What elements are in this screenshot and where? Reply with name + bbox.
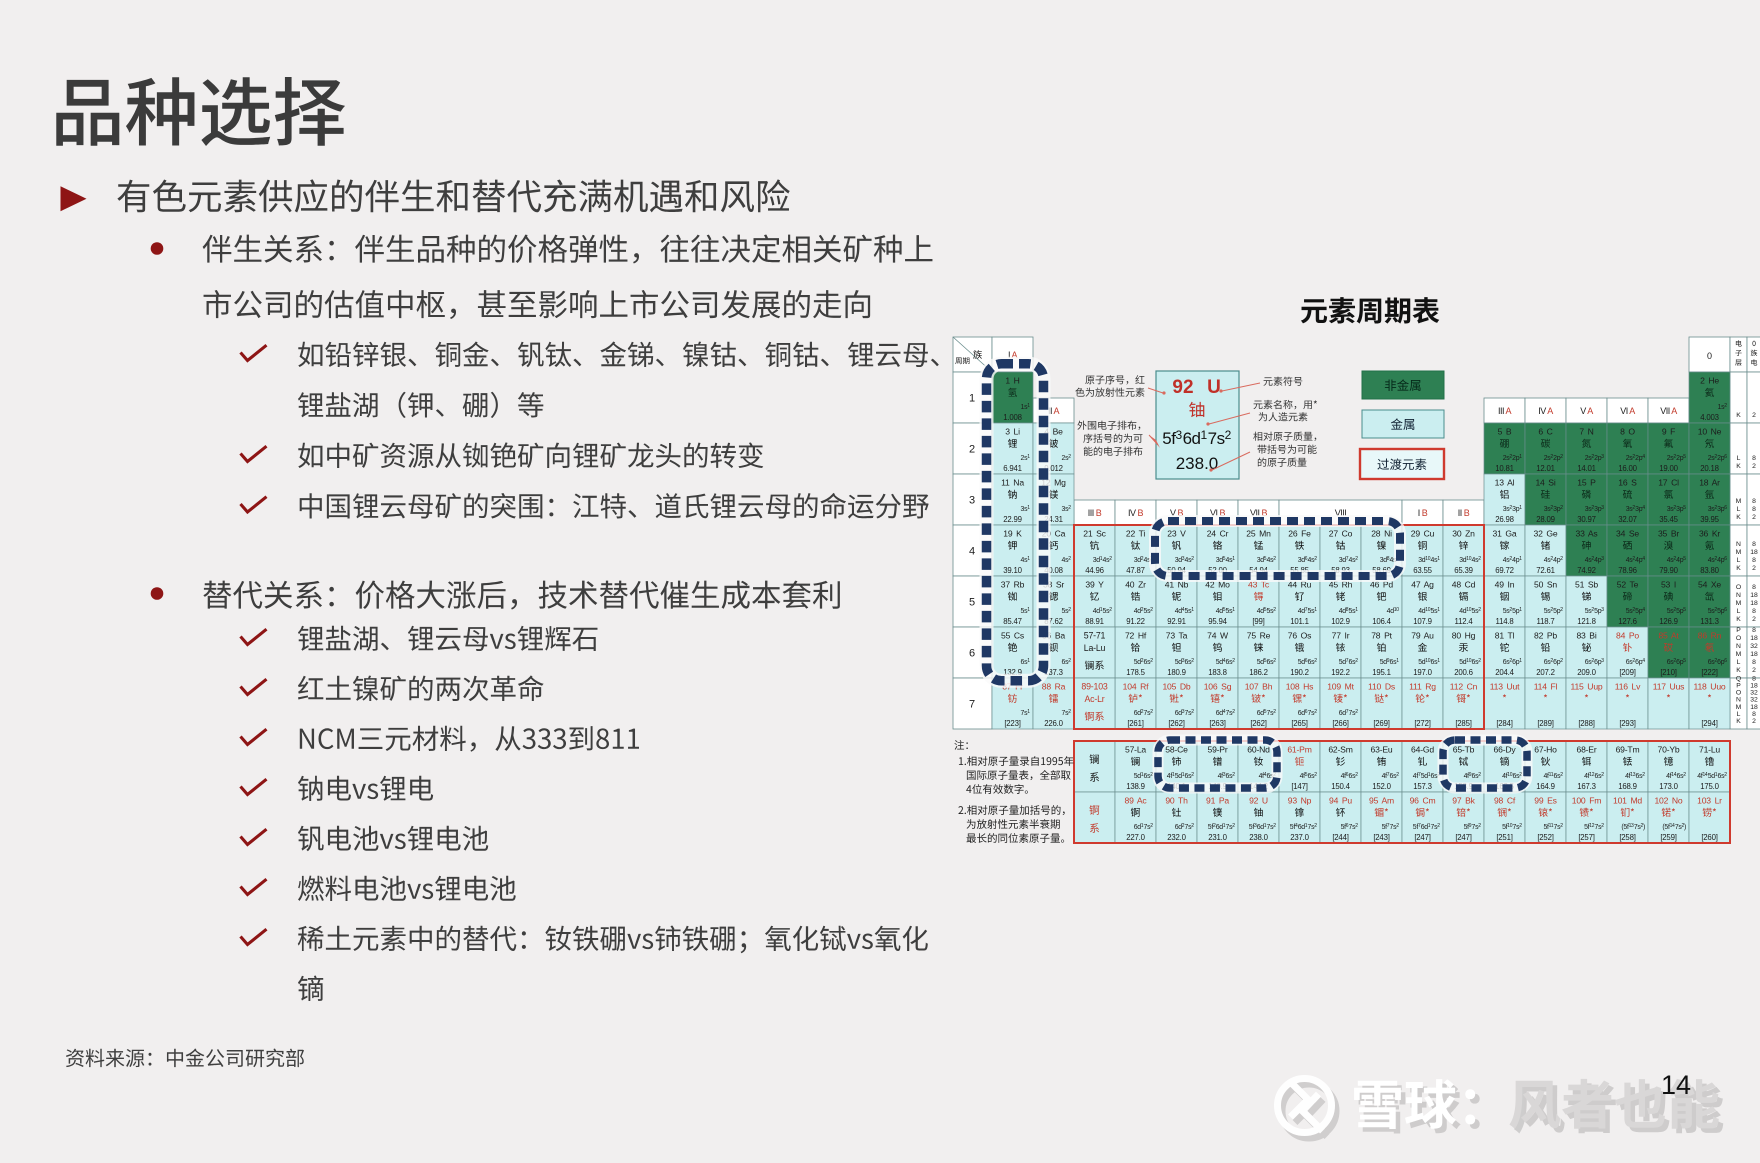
svg-text:78.96: 78.96 <box>1618 566 1637 575</box>
svg-text:[147]: [147] <box>1291 782 1307 791</box>
svg-text:44.96: 44.96 <box>1085 566 1104 575</box>
svg-text:11 Na: 11 Na <box>1001 477 1024 487</box>
svg-text:91.22: 91.22 <box>1126 617 1145 626</box>
svg-text:N: N <box>1736 592 1741 599</box>
svg-text:178.5: 178.5 <box>1126 668 1145 677</box>
svg-text:18: 18 <box>1750 635 1758 642</box>
svg-text:M: M <box>1736 498 1742 505</box>
svg-text:18: 18 <box>1750 683 1758 690</box>
svg-text:10 Ne: 10 Ne <box>1698 426 1722 436</box>
svg-text:102 No: 102 No <box>1654 795 1682 805</box>
svg-text:54 Xe: 54 Xe <box>1698 579 1721 589</box>
svg-text:1 H: 1 H <box>1005 375 1019 385</box>
svg-text:[288]: [288] <box>1578 719 1594 728</box>
svg-text:65.39: 65.39 <box>1454 566 1473 575</box>
svg-text:71-Lu: 71-Lu <box>1699 744 1720 754</box>
svg-text:109 Mt: 109 Mt <box>1327 681 1354 691</box>
svg-text:2s2: 2s2 <box>1062 454 1072 462</box>
svg-text:5f3 6d1 7s2: 5f3 6d1 7s2 <box>1249 823 1276 831</box>
svg-text:39.10: 39.10 <box>1003 566 1022 575</box>
svg-text:89 Ac: 89 Ac <box>1124 795 1147 805</box>
svg-text:110 Ds: 110 Ds <box>1368 681 1395 691</box>
svg-text:1s2: 1s2 <box>1718 403 1728 411</box>
svg-text:2 He: 2 He <box>1700 375 1719 385</box>
svg-text:186.2: 186.2 <box>1249 668 1268 677</box>
svg-text:7 N: 7 N <box>1579 426 1593 436</box>
svg-text:107 Bh: 107 Bh <box>1245 681 1273 691</box>
svg-text:88.91: 88.91 <box>1085 617 1104 626</box>
svg-text:[223]: [223] <box>1004 719 1020 728</box>
svg-text:95 Am: 95 Am <box>1369 795 1394 805</box>
svg-text:[289]: [289] <box>1537 719 1553 728</box>
svg-text:168.9: 168.9 <box>1618 782 1637 791</box>
svg-text:83 Bi: 83 Bi <box>1576 630 1596 640</box>
svg-text:150.4: 150.4 <box>1331 782 1350 791</box>
svg-text:74 W: 74 W <box>1207 630 1229 640</box>
svg-text:79 Au: 79 Au <box>1411 630 1434 640</box>
svg-text:1: 1 <box>969 393 975 405</box>
svg-text:[262]: [262] <box>1168 719 1184 728</box>
svg-text:[263]: [263] <box>1209 719 1225 728</box>
svg-text:30.97: 30.97 <box>1577 515 1596 524</box>
svg-text:226.0: 226.0 <box>1044 719 1063 728</box>
svg-text:4f14 5d1 6s2: 4f14 5d1 6s2 <box>1697 772 1727 780</box>
svg-text:75 Re: 75 Re <box>1247 630 1271 640</box>
svg-text:3 Li: 3 Li <box>1005 426 1020 436</box>
svg-text:157.3: 157.3 <box>1413 782 1432 791</box>
svg-text:[260]: [260] <box>1701 833 1717 842</box>
svg-text:5f7 6d1 7s2: 5f7 6d1 7s2 <box>1413 823 1440 831</box>
svg-text:K: K <box>1736 667 1741 674</box>
svg-text:72.61: 72.61 <box>1536 566 1555 575</box>
svg-text:4f7 5d1 6s2: 4f7 5d1 6s2 <box>1413 772 1440 780</box>
svg-text:4f13 6s2: 4f13 6s2 <box>1625 772 1645 780</box>
svg-text:111 Rg: 111 Rg <box>1409 681 1436 691</box>
svg-text:[262]: [262] <box>1250 719 1266 728</box>
svg-text:[294]: [294] <box>1701 719 1717 728</box>
svg-text:105 Db: 105 Db <box>1162 681 1190 691</box>
svg-text:92 U: 92 U <box>1249 795 1268 805</box>
svg-text:26 Fe: 26 Fe <box>1288 528 1311 538</box>
svg-text:O: O <box>1736 635 1741 642</box>
svg-text:3: 3 <box>969 495 975 507</box>
svg-text:8: 8 <box>1752 498 1756 505</box>
svg-text:N: N <box>1736 541 1741 548</box>
svg-text:18: 18 <box>1750 592 1758 599</box>
svg-text:209.0: 209.0 <box>1577 668 1596 677</box>
svg-text:195.1: 195.1 <box>1372 668 1391 677</box>
svg-text:[252]: [252] <box>1537 833 1553 842</box>
svg-text:6s2: 6s2 <box>1062 658 1072 666</box>
svg-text:126.9: 126.9 <box>1659 617 1678 626</box>
svg-text:23 V: 23 V <box>1167 528 1186 538</box>
svg-text:O: O <box>1736 690 1741 697</box>
svg-text:5s1: 5s1 <box>1021 607 1031 615</box>
svg-text:101 Md: 101 Md <box>1613 795 1642 805</box>
svg-text:26.98: 26.98 <box>1495 515 1514 524</box>
svg-text:4s1: 4s1 <box>1021 556 1031 564</box>
svg-text:227.0: 227.0 <box>1126 833 1145 842</box>
svg-text:2: 2 <box>1752 565 1756 572</box>
svg-text:2: 2 <box>1752 667 1756 674</box>
svg-text:M: M <box>1736 600 1742 607</box>
svg-text:79.90: 79.90 <box>1659 566 1678 575</box>
svg-text:51 Sb: 51 Sb <box>1575 579 1598 589</box>
svg-text:N: N <box>1736 697 1741 704</box>
svg-text:8: 8 <box>1752 675 1756 682</box>
svg-text:[251]: [251] <box>1496 833 1512 842</box>
svg-text:VII A: VII A <box>1660 406 1677 416</box>
svg-text:[284]: [284] <box>1496 719 1512 728</box>
svg-text:112 Cn: 112 Cn <box>1450 681 1478 691</box>
svg-text:58-Ce: 58-Ce <box>1165 744 1188 754</box>
svg-text:31 Ga: 31 Ga <box>1493 528 1517 538</box>
svg-text:115 Uup: 115 Uup <box>1571 681 1603 691</box>
svg-text:48 Cd: 48 Cd <box>1452 579 1476 589</box>
svg-text:[257]: [257] <box>1578 833 1594 842</box>
svg-text:P: P <box>1736 627 1741 634</box>
svg-text:K: K <box>1736 718 1741 725</box>
svg-text:69-Tm: 69-Tm <box>1616 744 1640 754</box>
svg-text:207.2: 207.2 <box>1536 668 1555 677</box>
svg-text:22.99: 22.99 <box>1003 515 1022 524</box>
svg-text:8: 8 <box>1752 455 1756 462</box>
svg-text:118.7: 118.7 <box>1537 617 1555 626</box>
svg-text:0: 0 <box>1707 351 1712 361</box>
svg-text:O: O <box>1736 584 1741 591</box>
svg-text:25 Mn: 25 Mn <box>1246 528 1271 538</box>
svg-text:183.8: 183.8 <box>1208 668 1227 677</box>
svg-text:74.92: 74.92 <box>1577 566 1596 575</box>
svg-text:47 Ag: 47 Ag <box>1411 579 1434 589</box>
svg-text:L: L <box>1737 455 1741 462</box>
svg-text:20.18: 20.18 <box>1700 464 1719 473</box>
svg-text:96 Cm: 96 Cm <box>1410 795 1436 805</box>
svg-text:5: 5 <box>969 597 975 609</box>
svg-text:8: 8 <box>1752 659 1756 666</box>
svg-text:8: 8 <box>1752 584 1756 591</box>
svg-text:9 F: 9 F <box>1662 426 1675 436</box>
svg-text:106 Sg: 106 Sg <box>1204 681 1232 691</box>
svg-text:19 K: 19 K <box>1003 528 1022 538</box>
svg-text:8: 8 <box>1752 557 1756 564</box>
svg-text:85 At: 85 At <box>1658 630 1679 640</box>
svg-text:IV B: IV B <box>1128 508 1144 518</box>
svg-text:K: K <box>1736 616 1741 623</box>
svg-text:131.3: 131.3 <box>1700 617 1719 626</box>
svg-text:37 Rb: 37 Rb <box>1001 579 1025 589</box>
svg-text:70-Yb: 70-Yb <box>1658 744 1680 754</box>
svg-text:V A: V A <box>1580 406 1593 416</box>
svg-text:[243]: [243] <box>1373 833 1389 842</box>
svg-text:62-Sm: 62-Sm <box>1328 744 1352 754</box>
svg-text:53 I: 53 I <box>1661 579 1676 589</box>
svg-text:72 Hf: 72 Hf <box>1125 630 1147 640</box>
svg-text:16.00: 16.00 <box>1618 464 1637 473</box>
svg-text:90 Th: 90 Th <box>1165 795 1188 805</box>
svg-text:4f10 6s2: 4f10 6s2 <box>1502 772 1522 780</box>
svg-text:[285]: [285] <box>1455 719 1471 728</box>
svg-text:84 Po: 84 Po <box>1616 630 1639 640</box>
svg-text:[247]: [247] <box>1455 833 1471 842</box>
svg-text:92.91: 92.91 <box>1167 617 1186 626</box>
svg-text:32 Ge: 32 Ge <box>1534 528 1558 538</box>
svg-text:65-Tb: 65-Tb <box>1453 744 1475 754</box>
svg-text:K: K <box>1736 514 1741 521</box>
svg-text:27 Co: 27 Co <box>1329 528 1353 538</box>
svg-text:121.8: 121.8 <box>1577 617 1596 626</box>
svg-text:21 Sc: 21 Sc <box>1083 528 1106 538</box>
svg-text:173.0: 173.0 <box>1659 782 1678 791</box>
svg-text:88 Ra: 88 Ra <box>1042 681 1066 691</box>
svg-text:7s1: 7s1 <box>1021 709 1031 717</box>
svg-text:36 Kr: 36 Kr <box>1699 528 1720 538</box>
svg-text:32: 32 <box>1750 697 1758 704</box>
svg-text:39.95: 39.95 <box>1700 515 1719 524</box>
svg-text:L: L <box>1737 557 1741 564</box>
svg-text:5f2 6d1 7s2: 5f2 6d1 7s2 <box>1208 823 1235 831</box>
svg-text:89-103: 89-103 <box>1081 682 1107 692</box>
svg-text:5f3 6d1 7s2: 5f3 6d1 7s2 <box>1162 428 1231 448</box>
svg-text:99 Es: 99 Es <box>1534 795 1557 805</box>
svg-text:[244]: [244] <box>1332 833 1348 842</box>
svg-text:[266]: [266] <box>1332 719 1348 728</box>
svg-text:104 Rf: 104 Rf <box>1123 681 1149 691</box>
svg-text:94 Pu: 94 Pu <box>1329 795 1352 805</box>
svg-text:34 Se: 34 Se <box>1616 528 1639 538</box>
svg-text:52 Te: 52 Te <box>1617 579 1639 589</box>
svg-text:Q: Q <box>1736 675 1741 682</box>
svg-text:8: 8 <box>1752 506 1756 513</box>
svg-text:8: 8 <box>1752 541 1756 548</box>
svg-text:U: U <box>1207 377 1221 398</box>
svg-text:14 Si: 14 Si <box>1535 477 1555 487</box>
svg-text:175.0: 175.0 <box>1700 782 1719 791</box>
svg-text:VI A: VI A <box>1620 406 1635 416</box>
svg-text:85.47: 85.47 <box>1003 617 1022 626</box>
svg-text:108 Hs: 108 Hs <box>1286 681 1314 691</box>
svg-text:Ac-Lr: Ac-Lr <box>1084 694 1104 704</box>
svg-text:95.94: 95.94 <box>1208 617 1227 626</box>
svg-text:6s1: 6s1 <box>1021 658 1031 666</box>
svg-text:[258]: [258] <box>1619 833 1635 842</box>
svg-text:6 C: 6 C <box>1538 426 1552 436</box>
svg-text:64-Gd: 64-Gd <box>1411 744 1434 754</box>
svg-text:61-Pm: 61-Pm <box>1287 744 1311 754</box>
svg-text:L: L <box>1737 506 1741 513</box>
svg-text:118 Uuo: 118 Uuo <box>1694 681 1726 691</box>
svg-text:82 Pb: 82 Pb <box>1534 630 1557 640</box>
svg-text:4f14 6s2: 4f14 6s2 <box>1666 772 1686 780</box>
svg-text:18: 18 <box>1750 600 1758 607</box>
svg-text:192.2: 192.2 <box>1331 668 1350 677</box>
svg-text:M: M <box>1736 704 1742 711</box>
svg-text:35.45: 35.45 <box>1659 515 1678 524</box>
svg-text:164.9: 164.9 <box>1536 782 1555 791</box>
svg-text:15 P: 15 P <box>1577 477 1596 487</box>
svg-text:5f12 7s2: 5f12 7s2 <box>1584 823 1604 831</box>
svg-text:76 Os: 76 Os <box>1288 630 1311 640</box>
svg-text:La-Lu: La-Lu <box>1084 643 1106 653</box>
svg-text:81 Tl: 81 Tl <box>1495 630 1515 640</box>
svg-text:24 Cr: 24 Cr <box>1207 528 1229 538</box>
svg-text:III B: III B <box>1088 508 1102 518</box>
svg-text:47.87: 47.87 <box>1126 566 1145 575</box>
svg-text:13 Al: 13 Al <box>1495 477 1515 487</box>
svg-text:5f4 6d1 7s2: 5f4 6d1 7s2 <box>1290 823 1317 831</box>
svg-text:93 Np: 93 Np <box>1288 795 1312 805</box>
svg-text:92: 92 <box>1172 377 1193 398</box>
svg-text:101.1: 101.1 <box>1290 617 1309 626</box>
svg-text:2: 2 <box>1752 514 1756 521</box>
svg-text:113 Uut: 113 Uut <box>1490 681 1520 691</box>
svg-text:[222]: [222] <box>1701 668 1717 677</box>
svg-text:28.09: 28.09 <box>1536 515 1555 524</box>
svg-text:7s2: 7s2 <box>1062 709 1072 717</box>
svg-text:167.3: 167.3 <box>1577 782 1596 791</box>
svg-text:28 Ni: 28 Ni <box>1371 528 1392 538</box>
svg-text:103 Lr: 103 Lr <box>1697 795 1722 805</box>
svg-text:59-Pr: 59-Pr <box>1207 744 1227 754</box>
svg-text:180.9: 180.9 <box>1167 668 1186 677</box>
svg-text:M: M <box>1736 651 1742 658</box>
svg-text:K: K <box>1736 412 1741 419</box>
svg-text:4f1 5d1 6s2: 4f1 5d1 6s2 <box>1167 772 1194 780</box>
svg-text:17 Cl: 17 Cl <box>1658 477 1679 487</box>
svg-text:K: K <box>1736 463 1741 470</box>
svg-text:[265]: [265] <box>1291 719 1307 728</box>
svg-text:16 S: 16 S <box>1618 477 1637 487</box>
svg-text:8: 8 <box>1752 711 1756 718</box>
svg-text:[269]: [269] <box>1373 719 1389 728</box>
svg-text:33 As: 33 As <box>1575 528 1597 538</box>
svg-text:237.0: 237.0 <box>1290 833 1309 842</box>
svg-text:M: M <box>1736 549 1742 556</box>
svg-text:5 B: 5 B <box>1498 426 1512 436</box>
svg-text:4f12 6s2: 4f12 6s2 <box>1584 772 1604 780</box>
svg-text:2: 2 <box>1752 412 1756 419</box>
svg-text:2: 2 <box>969 444 975 456</box>
svg-text:L: L <box>1737 608 1741 615</box>
svg-text:107.9: 107.9 <box>1413 617 1432 626</box>
svg-text:63.55: 63.55 <box>1413 566 1432 575</box>
svg-text:5s2: 5s2 <box>1062 607 1072 615</box>
svg-text:32.07: 32.07 <box>1618 515 1637 524</box>
svg-text:100 Fm: 100 Fm <box>1572 795 1601 805</box>
svg-text:IV A: IV A <box>1538 406 1553 416</box>
svg-text:[261]: [261] <box>1127 719 1143 728</box>
svg-text:[209]: [209] <box>1619 668 1635 677</box>
svg-text:116 Lv: 116 Lv <box>1615 681 1641 691</box>
svg-text:12.01: 12.01 <box>1536 464 1555 473</box>
svg-text:197.0: 197.0 <box>1413 668 1432 677</box>
svg-text:55 Cs: 55 Cs <box>1001 630 1024 640</box>
svg-text:114.8: 114.8 <box>1496 617 1514 626</box>
svg-text:78 Pt: 78 Pt <box>1371 630 1392 640</box>
svg-text:18: 18 <box>1750 549 1758 556</box>
svg-text:57-La: 57-La <box>1125 744 1146 754</box>
svg-text:68-Er: 68-Er <box>1576 744 1596 754</box>
svg-text:114 Fl: 114 Fl <box>1534 681 1558 691</box>
svg-text:[210]: [210] <box>1660 668 1676 677</box>
svg-text:40 Zr: 40 Zr <box>1125 579 1146 589</box>
svg-text:[99]: [99] <box>1252 617 1264 626</box>
svg-text:117 Uus: 117 Uus <box>1653 681 1685 691</box>
svg-text:14: 14 <box>1661 1070 1691 1100</box>
svg-text:4s2: 4s2 <box>1062 556 1072 564</box>
svg-text:29 Cu: 29 Cu <box>1411 528 1435 538</box>
svg-text:66-Dy: 66-Dy <box>1494 744 1517 754</box>
svg-text:19.00: 19.00 <box>1659 464 1678 473</box>
svg-text:200.6: 200.6 <box>1454 668 1473 677</box>
svg-text:106.4: 106.4 <box>1372 617 1391 626</box>
svg-text:18: 18 <box>1750 651 1758 658</box>
svg-text:127.6: 127.6 <box>1618 617 1637 626</box>
svg-text:152.0: 152.0 <box>1372 782 1391 791</box>
svg-text:P: P <box>1736 683 1741 690</box>
svg-text:83.80: 83.80 <box>1700 566 1719 575</box>
svg-text:K: K <box>1736 565 1741 572</box>
svg-text:6.941: 6.941 <box>1003 464 1022 473</box>
svg-text:4.003: 4.003 <box>1700 413 1719 422</box>
svg-text:80 Hg: 80 Hg <box>1452 630 1476 640</box>
svg-text:232.0: 232.0 <box>1167 833 1186 842</box>
svg-text:L: L <box>1737 711 1741 718</box>
svg-text:2: 2 <box>1752 718 1756 725</box>
svg-text:[247]: [247] <box>1414 833 1430 842</box>
svg-text:32: 32 <box>1750 690 1758 697</box>
svg-text:L: L <box>1737 659 1741 666</box>
svg-text:63-Eu: 63-Eu <box>1371 744 1393 754</box>
svg-text:91 Pa: 91 Pa <box>1206 795 1229 805</box>
svg-text:4: 4 <box>969 546 975 558</box>
svg-text:[293]: [293] <box>1619 719 1635 728</box>
svg-text:86 Rn: 86 Rn <box>1698 630 1722 640</box>
svg-text:8 O: 8 O <box>1620 426 1635 436</box>
svg-text:3s1: 3s1 <box>1021 505 1031 513</box>
svg-text:3s2: 3s2 <box>1062 505 1072 513</box>
svg-text:57-71: 57-71 <box>1084 631 1106 641</box>
svg-text:[259]: [259] <box>1660 833 1676 842</box>
svg-text:97 Bk: 97 Bk <box>1452 795 1475 805</box>
svg-text:73 Ta: 73 Ta <box>1166 630 1188 640</box>
svg-text:22 Ti: 22 Ti <box>1126 528 1145 538</box>
svg-text:8: 8 <box>1752 608 1756 615</box>
svg-text:30 Zn: 30 Zn <box>1452 528 1475 538</box>
svg-text:N: N <box>1736 643 1741 650</box>
svg-text:2: 2 <box>1752 616 1756 623</box>
svg-text:32: 32 <box>1750 643 1758 650</box>
svg-text:III A: III A <box>1498 406 1512 416</box>
svg-text:69.72: 69.72 <box>1495 566 1514 575</box>
svg-text:60-Nd: 60-Nd <box>1247 744 1270 754</box>
svg-text:39 Y: 39 Y <box>1085 579 1104 589</box>
svg-text:8: 8 <box>1752 627 1756 634</box>
svg-text:67-Ho: 67-Ho <box>1534 744 1557 754</box>
svg-text:2: 2 <box>1752 463 1756 470</box>
svg-text:I B: I B <box>1418 508 1428 518</box>
svg-text:[272]: [272] <box>1414 719 1430 728</box>
svg-text:1.008: 1.008 <box>1003 413 1022 422</box>
svg-text:14.01: 14.01 <box>1577 464 1596 473</box>
svg-text:238.0: 238.0 <box>1249 833 1268 842</box>
svg-text:138.9: 138.9 <box>1126 782 1145 791</box>
svg-text:50 Sn: 50 Sn <box>1534 579 1557 589</box>
svg-text:10.81: 10.81 <box>1495 464 1514 473</box>
svg-text:2s1: 2s1 <box>1021 454 1031 462</box>
svg-text:231.0: 231.0 <box>1208 833 1227 842</box>
svg-text:204.4: 204.4 <box>1495 668 1514 677</box>
